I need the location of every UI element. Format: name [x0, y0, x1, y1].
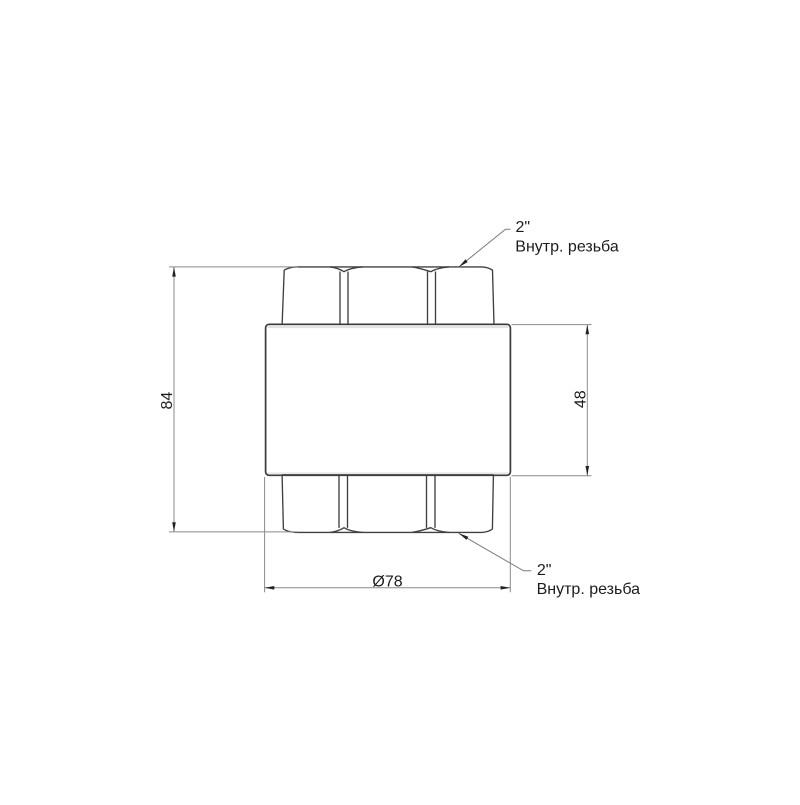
svg-text:2": 2": [537, 562, 552, 579]
svg-text:84: 84: [159, 392, 176, 410]
svg-text:48: 48: [573, 390, 590, 408]
svg-text:Внутр. резьба: Внутр. резьба: [515, 238, 619, 255]
svg-text:Внутр. резьба: Внутр. резьба: [537, 581, 641, 598]
svg-text:Ø78: Ø78: [372, 573, 402, 590]
svg-text:2": 2": [516, 219, 531, 236]
